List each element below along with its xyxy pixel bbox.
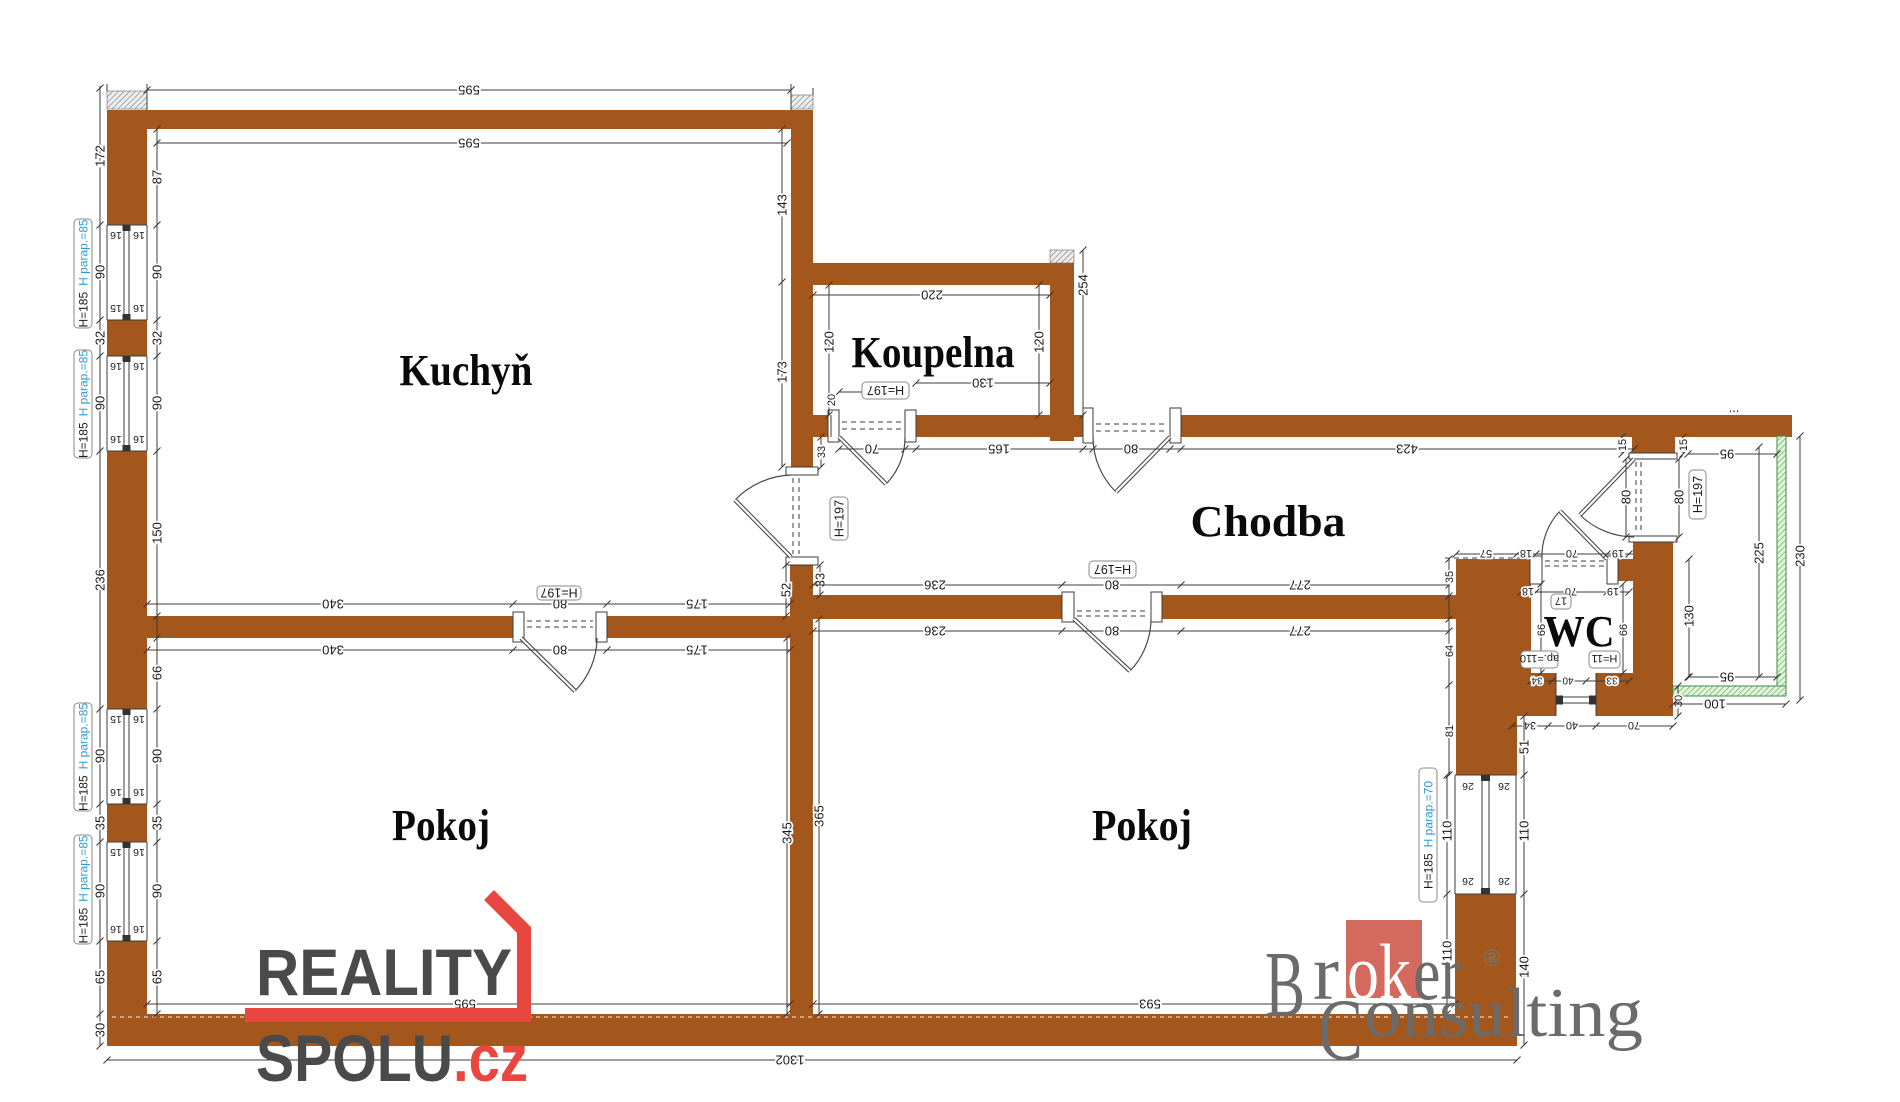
- svg-text:51: 51: [1517, 740, 1532, 754]
- svg-text:57: 57: [1480, 547, 1492, 559]
- svg-text:26: 26: [1498, 875, 1510, 887]
- svg-text:90: 90: [93, 749, 108, 763]
- svg-text:277: 277: [1289, 623, 1311, 638]
- svg-text:66: 66: [150, 666, 165, 680]
- svg-text:H=197: H=197: [832, 500, 846, 537]
- svg-text:423: 423: [1396, 441, 1418, 456]
- svg-text:H=185 H parap.=85: H=185 H parap.=85: [76, 219, 90, 327]
- svg-text:16: 16: [110, 433, 122, 445]
- svg-text:66: 66: [1618, 624, 1630, 636]
- svg-text:130: 130: [972, 375, 994, 390]
- svg-text:100: 100: [1704, 696, 1726, 711]
- svg-text:90: 90: [93, 396, 108, 410]
- svg-text:17: 17: [1555, 595, 1567, 607]
- svg-text:90: 90: [93, 265, 108, 279]
- svg-text:onsulting: onsulting: [1364, 975, 1643, 1052]
- svg-text:20: 20: [826, 394, 838, 406]
- svg-text:595: 595: [458, 82, 480, 97]
- svg-text:80: 80: [1105, 577, 1119, 592]
- svg-text:Koupelna: Koupelna: [852, 328, 1015, 377]
- svg-text:80: 80: [1672, 490, 1687, 504]
- svg-text:19: 19: [1612, 547, 1624, 559]
- svg-text:236: 236: [924, 577, 946, 592]
- svg-text:90: 90: [150, 749, 165, 763]
- svg-text:REALITY: REALITY: [256, 935, 512, 1009]
- svg-text:175: 175: [686, 642, 708, 657]
- svg-text:90: 90: [150, 396, 165, 410]
- svg-text:34: 34: [1524, 719, 1536, 731]
- svg-text:18: 18: [1522, 585, 1534, 597]
- svg-text:254: 254: [1076, 274, 1091, 296]
- svg-text:Pokoj: Pokoj: [392, 801, 490, 850]
- svg-text:81: 81: [1444, 725, 1456, 737]
- svg-text:595: 595: [458, 135, 480, 150]
- svg-text:34: 34: [1531, 674, 1543, 685]
- svg-text:16: 16: [133, 923, 145, 935]
- svg-text:16: 16: [133, 360, 145, 372]
- svg-text:16: 16: [110, 923, 122, 935]
- svg-text:120: 120: [822, 331, 837, 353]
- svg-text:30: 30: [1673, 695, 1685, 707]
- svg-text:165: 165: [988, 441, 1010, 456]
- svg-text:173: 173: [775, 361, 790, 383]
- svg-text:30: 30: [93, 1023, 108, 1037]
- svg-text:H=197: H=197: [1691, 476, 1705, 513]
- svg-text:18: 18: [1520, 547, 1532, 559]
- svg-text:H=185 H parap.=85: H=185 H parap.=85: [76, 703, 90, 811]
- svg-text:87: 87: [150, 170, 165, 184]
- svg-text:90: 90: [150, 265, 165, 279]
- svg-text:33: 33: [816, 446, 828, 458]
- svg-text:15: 15: [110, 302, 122, 314]
- svg-text:35: 35: [93, 816, 108, 830]
- svg-text:H=197: H=197: [867, 383, 904, 397]
- svg-text:16: 16: [133, 846, 145, 858]
- svg-text:230: 230: [1793, 545, 1808, 567]
- svg-text:...: ...: [1729, 400, 1740, 415]
- svg-text:65: 65: [93, 970, 108, 984]
- svg-text:175: 175: [686, 596, 708, 611]
- svg-text:16: 16: [110, 786, 122, 798]
- svg-text:80: 80: [1105, 623, 1119, 638]
- svg-text:16: 16: [133, 433, 145, 445]
- svg-text:35: 35: [1444, 571, 1456, 583]
- svg-text:26: 26: [1462, 780, 1474, 792]
- svg-text:70: 70: [1628, 719, 1640, 731]
- svg-text:16: 16: [110, 360, 122, 372]
- svg-text:70: 70: [865, 441, 879, 456]
- svg-text:35: 35: [150, 816, 165, 830]
- svg-text:26: 26: [1498, 780, 1510, 792]
- svg-text:Pokoj: Pokoj: [1092, 801, 1192, 850]
- svg-text:SPOLU: SPOLU: [256, 1021, 453, 1095]
- svg-text:16: 16: [133, 302, 145, 314]
- svg-text:143: 143: [775, 194, 790, 216]
- svg-text:220: 220: [921, 287, 943, 302]
- svg-text:95: 95: [1720, 669, 1734, 684]
- svg-text:64: 64: [1444, 645, 1456, 657]
- svg-text:40: 40: [1562, 674, 1574, 685]
- svg-text:1302: 1302: [776, 1052, 805, 1067]
- svg-text:15: 15: [1617, 439, 1629, 451]
- svg-text:90: 90: [93, 884, 108, 898]
- svg-text:593: 593: [1139, 996, 1161, 1011]
- svg-text:32: 32: [93, 331, 108, 345]
- svg-text:365: 365: [812, 805, 827, 827]
- svg-text:172: 172: [93, 145, 108, 167]
- svg-text:16: 16: [133, 786, 145, 798]
- svg-text:15: 15: [1678, 439, 1690, 451]
- svg-text:80: 80: [553, 642, 567, 657]
- svg-text:225: 225: [1752, 542, 1767, 564]
- svg-text:Kuchyň: Kuchyň: [400, 346, 533, 395]
- svg-text:19: 19: [1607, 585, 1619, 597]
- svg-text:65: 65: [150, 970, 165, 984]
- svg-text:16: 16: [110, 229, 122, 241]
- svg-text:150: 150: [150, 522, 165, 544]
- svg-text:C: C: [1318, 982, 1363, 1079]
- svg-text:340: 340: [322, 642, 344, 657]
- svg-text:130: 130: [1682, 605, 1697, 627]
- svg-text:236: 236: [924, 623, 946, 638]
- svg-text:70: 70: [1566, 547, 1578, 559]
- svg-text:H=185 H parap.=85: H=185 H parap.=85: [76, 835, 90, 943]
- svg-text:277: 277: [1289, 577, 1311, 592]
- svg-text:B: B: [1265, 933, 1305, 1037]
- svg-text:H=185 H parap.=70: H=185 H parap.=70: [1421, 781, 1435, 889]
- svg-text:16: 16: [133, 229, 145, 241]
- svg-text:Chodba: Chodba: [1191, 497, 1346, 546]
- svg-text:H=197: H=197: [540, 586, 577, 600]
- svg-text:WC: WC: [1544, 607, 1615, 656]
- svg-text:80: 80: [1124, 441, 1138, 456]
- svg-text:340: 340: [322, 596, 344, 611]
- svg-text:95: 95: [1720, 446, 1734, 461]
- svg-text:80: 80: [1619, 490, 1634, 504]
- svg-text:26: 26: [1462, 875, 1474, 887]
- svg-text:®: ®: [1483, 946, 1501, 972]
- svg-text:.cz: .cz: [453, 1021, 528, 1095]
- svg-text:15: 15: [110, 846, 122, 858]
- svg-text:15: 15: [110, 713, 122, 725]
- svg-text:110: 110: [1440, 821, 1455, 842]
- svg-text:236: 236: [93, 569, 108, 591]
- svg-text:32: 32: [150, 331, 165, 345]
- svg-text:345: 345: [780, 822, 795, 844]
- svg-text:110: 110: [1517, 821, 1532, 842]
- svg-text:H=185 H parap.=85: H=185 H parap.=85: [76, 350, 90, 458]
- svg-text:52: 52: [779, 583, 794, 597]
- svg-text:H=197: H=197: [1094, 562, 1131, 576]
- svg-text:16: 16: [133, 713, 145, 725]
- svg-text:90: 90: [150, 884, 165, 898]
- svg-text:120: 120: [1032, 331, 1047, 353]
- svg-text:33: 33: [1606, 674, 1618, 685]
- svg-text:40: 40: [1566, 719, 1578, 731]
